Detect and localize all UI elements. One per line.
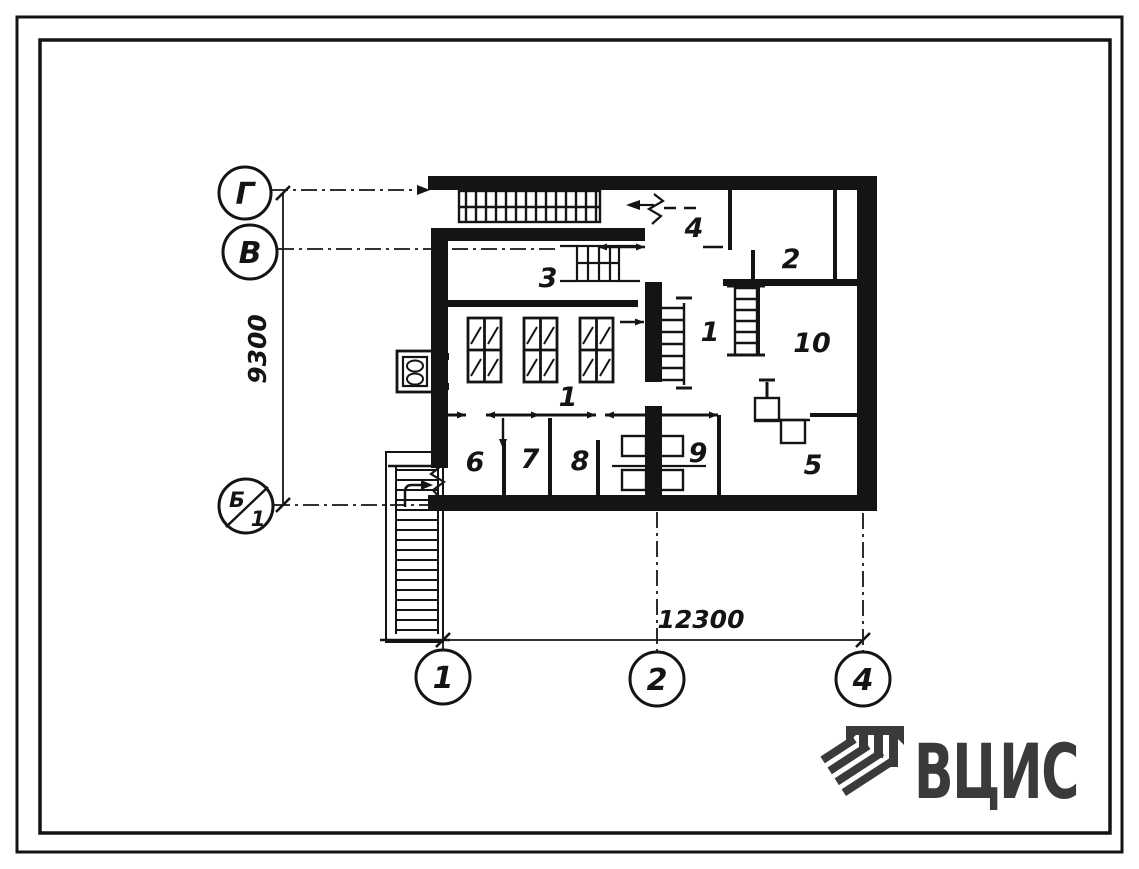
dim-horizontal: 12300 [436,605,870,647]
axis-label-b-sub: 1 [251,507,266,531]
stair-room3 [560,246,640,281]
axis-label-g: Г [235,177,256,212]
axis-label-2: 2 [647,663,668,698]
room-label-6: 6 [466,447,485,478]
room-label-5: 5 [804,450,823,481]
room-label-9: 9 [689,438,708,469]
step-symbols-room5 [755,380,810,443]
axis-label-b: Б [229,488,245,512]
window-symbol [580,318,613,382]
axis-label-4: 4 [852,663,874,698]
floor-plan-svg: 9300 12300 Г В Б 1 1 2 4 3 4 2 1 10 [0,0,1139,869]
section-arrow [626,200,640,210]
dim-horizontal-value: 12300 [658,605,745,634]
axis-label-v: В [239,236,262,271]
window-symbols [468,318,613,382]
stair-middle [662,298,692,388]
axis-circle-1: 1 [416,650,470,704]
window-symbol [524,318,557,382]
room-label-3: 3 [539,263,558,294]
vcis-logo: ВЦИС [820,723,1078,816]
vcis-logo-text: ВЦИС [914,727,1078,816]
axis-circle-2: 2 [630,652,684,706]
stair-top-band [459,191,600,222]
vcis-logo-icon [820,723,904,796]
dim-vertical-value: 9300 [243,314,272,384]
axis-circle-b1: Б 1 [219,479,273,533]
window-symbol [468,318,501,382]
room-label-corridor: 1 [701,317,720,348]
room-label-8: 8 [571,446,590,477]
axis-circle-g: Г [219,167,271,219]
stair-direction-arrow [421,480,433,490]
axis-label-1: 1 [433,661,454,696]
room-label-10: 10 [793,328,831,359]
axis-circle-v: В [223,225,277,279]
room-label-hall: 1 [559,382,578,413]
axis-circle-4: 4 [836,652,890,706]
drawing-sheet: 9300 12300 Г В Б 1 1 2 4 3 4 2 1 10 [0,0,1139,869]
room-label-2: 2 [782,244,801,275]
room-label-4: 4 [684,213,704,244]
room-label-7: 7 [521,444,540,475]
